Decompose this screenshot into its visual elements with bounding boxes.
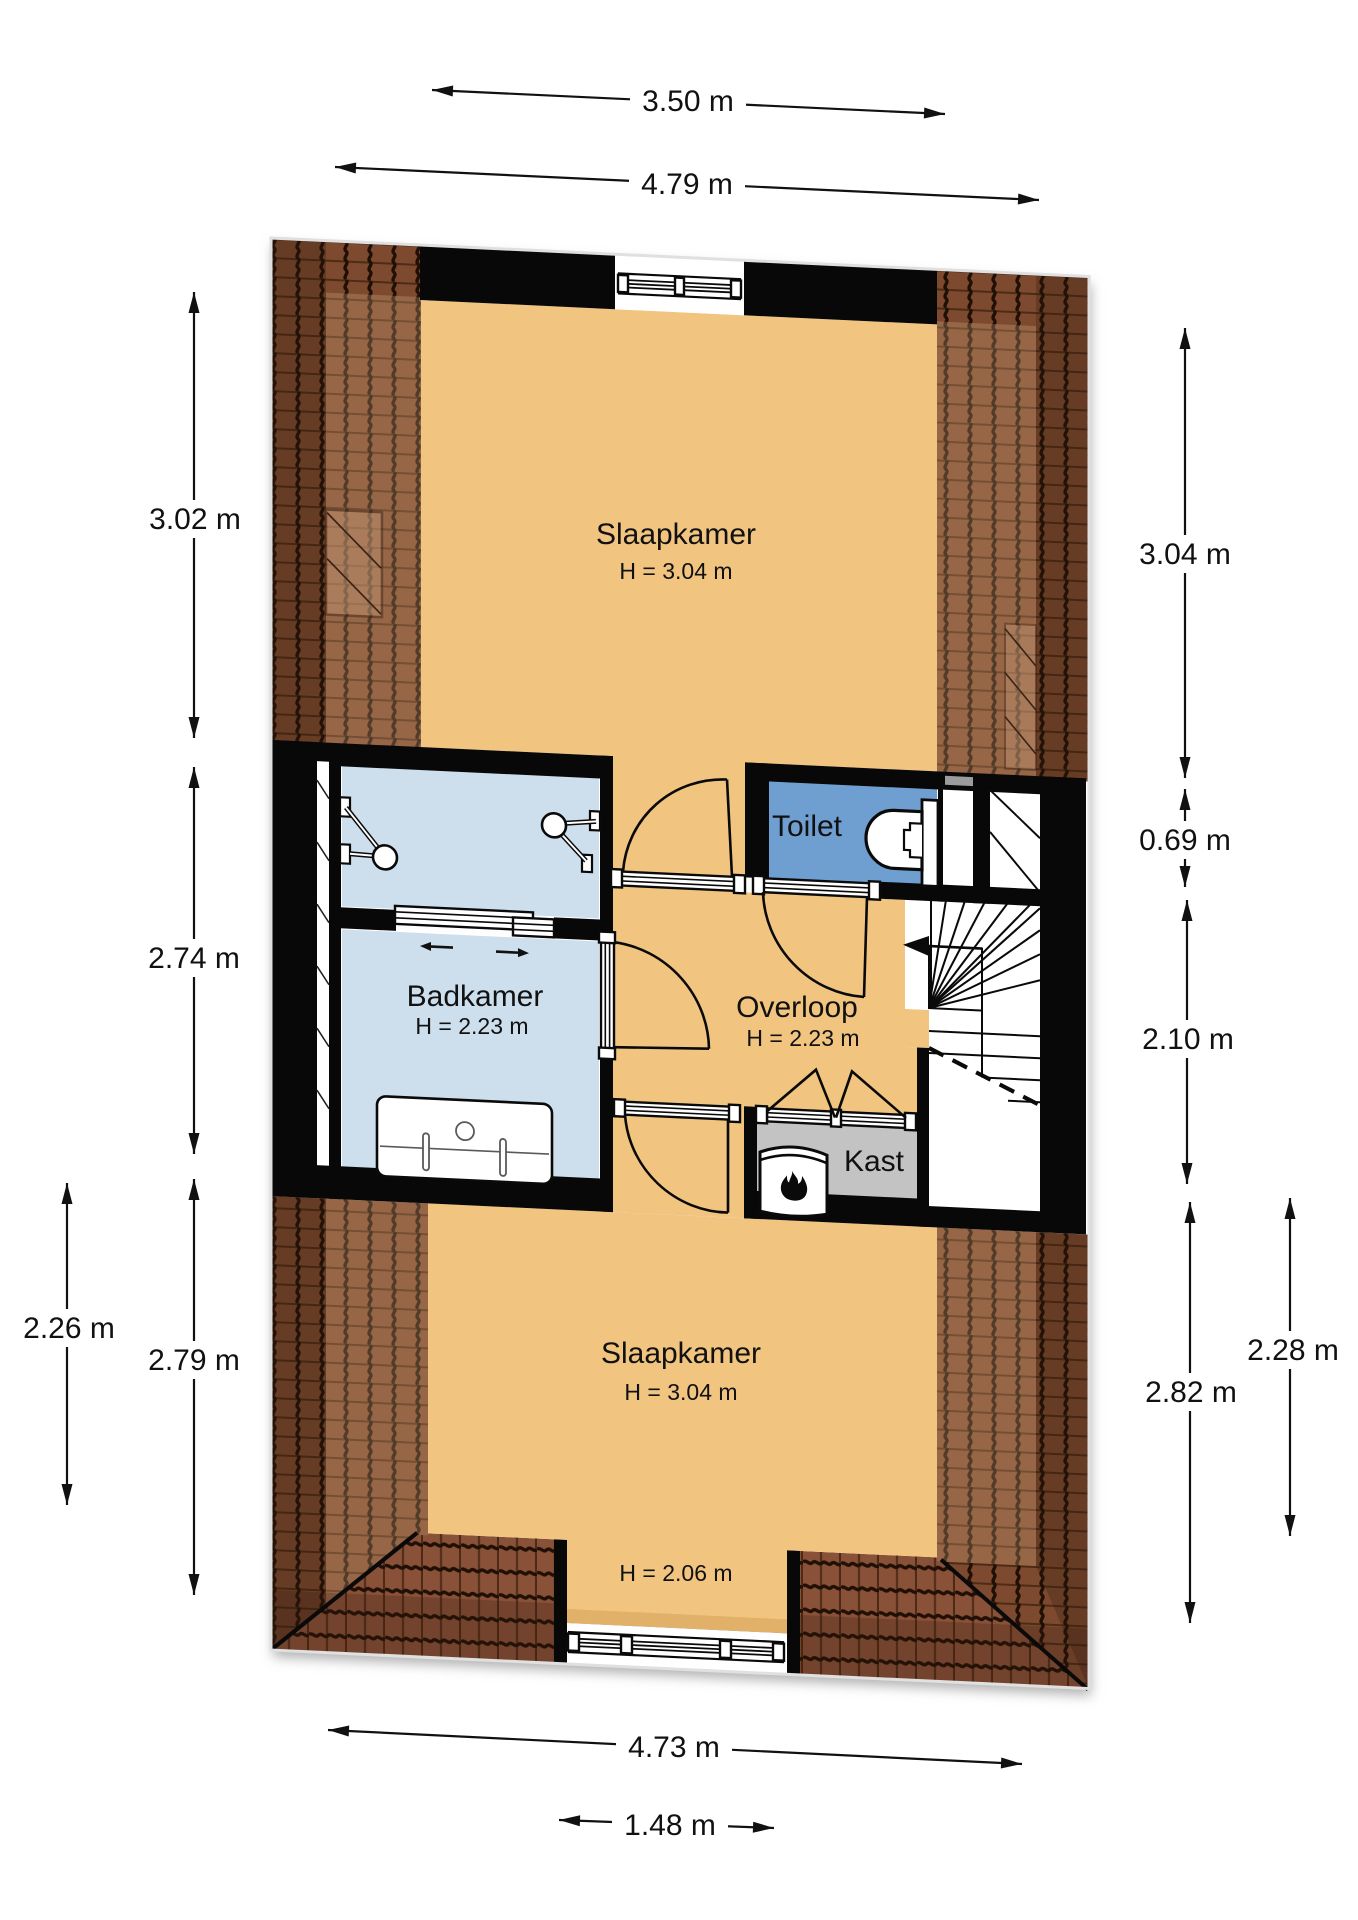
- svg-text:3.50 m: 3.50 m: [642, 85, 734, 118]
- svg-text:2.79 m: 2.79 m: [148, 1344, 240, 1377]
- svg-text:2.82 m: 2.82 m: [1145, 1376, 1237, 1409]
- svg-text:H = 2.06 m: H = 2.06 m: [619, 1560, 732, 1586]
- svg-text:2.10 m: 2.10 m: [1142, 1023, 1234, 1056]
- svg-text:Toilet: Toilet: [772, 810, 843, 843]
- svg-text:H = 2.23 m: H = 2.23 m: [415, 1013, 528, 1039]
- svg-text:0.69 m: 0.69 m: [1139, 824, 1231, 857]
- svg-text:H = 3.04 m: H = 3.04 m: [624, 1379, 737, 1405]
- svg-text:4.73 m: 4.73 m: [628, 1731, 720, 1764]
- svg-text:4.79 m: 4.79 m: [641, 168, 733, 201]
- svg-text:H = 2.23 m: H = 2.23 m: [746, 1025, 859, 1051]
- svg-text:H = 3.04 m: H = 3.04 m: [619, 558, 732, 584]
- svg-text:2.74 m: 2.74 m: [148, 942, 240, 975]
- svg-text:Overloop: Overloop: [736, 991, 858, 1024]
- svg-text:Slaapkamer: Slaapkamer: [601, 1337, 761, 1370]
- svg-text:2.28 m: 2.28 m: [1247, 1334, 1339, 1367]
- svg-text:2.26 m: 2.26 m: [23, 1312, 115, 1345]
- svg-text:Badkamer: Badkamer: [407, 980, 544, 1013]
- svg-text:1.48 m: 1.48 m: [624, 1809, 716, 1842]
- svg-text:Kast: Kast: [844, 1145, 905, 1178]
- svg-text:3.02 m: 3.02 m: [149, 503, 241, 536]
- svg-text:3.04 m: 3.04 m: [1139, 538, 1231, 571]
- svg-text:Slaapkamer: Slaapkamer: [596, 518, 756, 551]
